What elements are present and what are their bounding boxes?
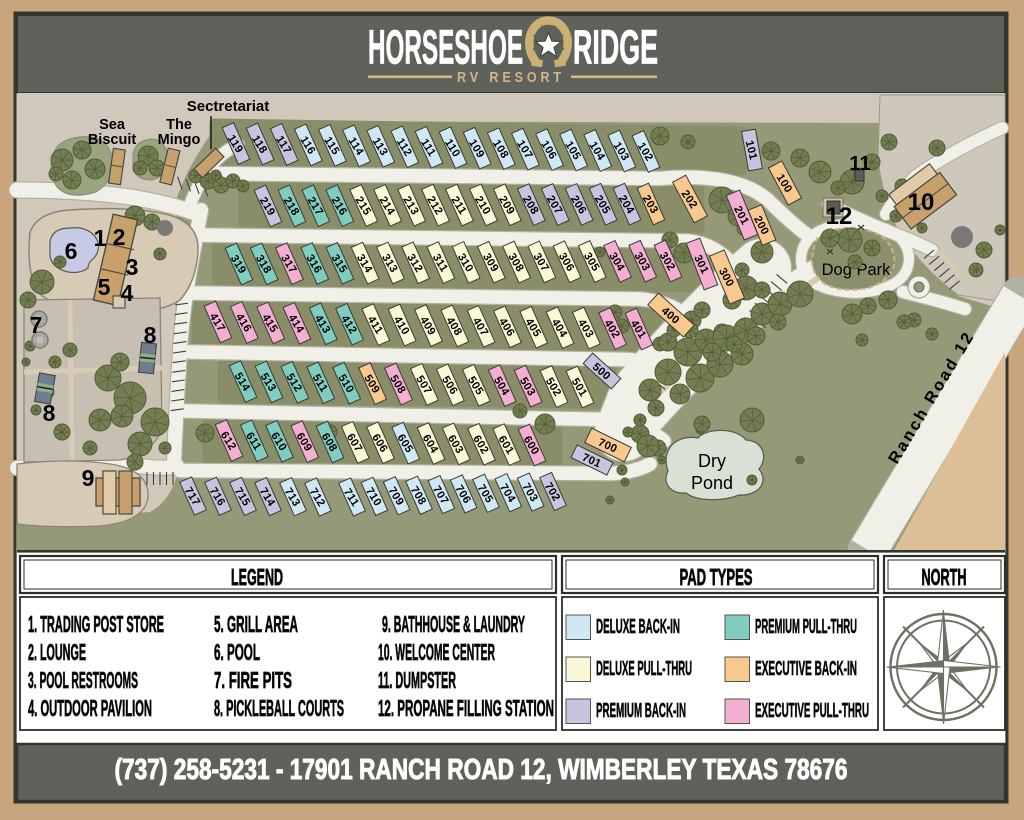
svg-text:EXECUTIVE PULL-THRU: EXECUTIVE PULL-THRU [755, 700, 869, 722]
svg-text:10. WELCOME CENTER: 10. WELCOME CENTER [378, 639, 495, 665]
svg-text:PREMIUM BACK-IN: PREMIUM BACK-IN [596, 700, 686, 722]
svg-text:4. OUTDOOR PAVILION: 4. OUTDOOR PAVILION [28, 695, 152, 721]
svg-text:5. GRILL AREA: 5. GRILL AREA [214, 611, 298, 637]
svg-text:PREMIUM PULL-THRU: PREMIUM PULL-THRU [755, 616, 857, 638]
svg-text:9. BATHHOUSE & LAUNDRY: 9. BATHHOUSE & LAUNDRY [382, 611, 525, 637]
svg-text:HORSESHOE: HORSESHOE [368, 22, 523, 75]
svg-text:3: 3 [126, 254, 139, 280]
svg-text:5: 5 [98, 274, 111, 300]
svg-text:7. FIRE PITS: 7. FIRE PITS [214, 667, 292, 693]
svg-text:PAD TYPES: PAD TYPES [680, 564, 753, 590]
svg-text:LEGEND: LEGEND [231, 564, 283, 590]
svg-text:DELUXE PULL-THRU: DELUXE PULL-THRU [596, 658, 692, 680]
svg-text:8. PICKLEBALL COURTS: 8. PICKLEBALL COURTS [214, 695, 344, 721]
svg-text:10: 10 [908, 189, 935, 216]
svg-text:3. POOL RESTROOMS: 3. POOL RESTROOMS [28, 667, 138, 693]
svg-text:4: 4 [121, 280, 134, 306]
svg-text:8: 8 [144, 322, 157, 348]
svg-text:1: 1 [94, 225, 107, 251]
svg-text:6: 6 [65, 238, 78, 264]
svg-text:Pond: Pond [691, 473, 733, 493]
svg-text:EXECUTIVE BACK-IN: EXECUTIVE BACK-IN [755, 658, 857, 680]
svg-text:7: 7 [30, 312, 43, 338]
svg-text:6. POOL: 6. POOL [214, 639, 260, 665]
svg-text:The: The [166, 117, 192, 133]
svg-text:RIDGE: RIDGE [573, 22, 658, 75]
svg-text:1. TRADING POST STORE: 1. TRADING POST STORE [28, 611, 164, 637]
svg-text:8: 8 [43, 400, 56, 426]
svg-text:Sectretariat: Sectretariat [187, 98, 270, 115]
svg-text:RV RESORT: RV RESORT [457, 70, 565, 86]
svg-text:12: 12 [826, 203, 853, 230]
svg-text:DELUXE BACK-IN: DELUXE BACK-IN [596, 616, 680, 638]
svg-text:9: 9 [82, 465, 95, 491]
svg-text:12. PROPANE FILLING STATION: 12. PROPANE FILLING STATION [378, 695, 554, 721]
svg-text:Mingo: Mingo [158, 132, 201, 148]
svg-text:11. DUMPSTER: 11. DUMPSTER [378, 667, 456, 693]
svg-text:11: 11 [849, 153, 870, 175]
svg-text:(737) 258-5231 - 17901 RANCH R: (737) 258-5231 - 17901 RANCH ROAD 12, WI… [115, 754, 848, 786]
svg-text:NORTH: NORTH [922, 564, 967, 590]
svg-text:Dry: Dry [698, 451, 726, 471]
svg-text:2: 2 [113, 224, 126, 250]
svg-text:Biscuit: Biscuit [88, 132, 137, 148]
svg-text:2. LOUNGE: 2. LOUNGE [28, 639, 86, 665]
svg-text:Sea: Sea [99, 117, 126, 133]
